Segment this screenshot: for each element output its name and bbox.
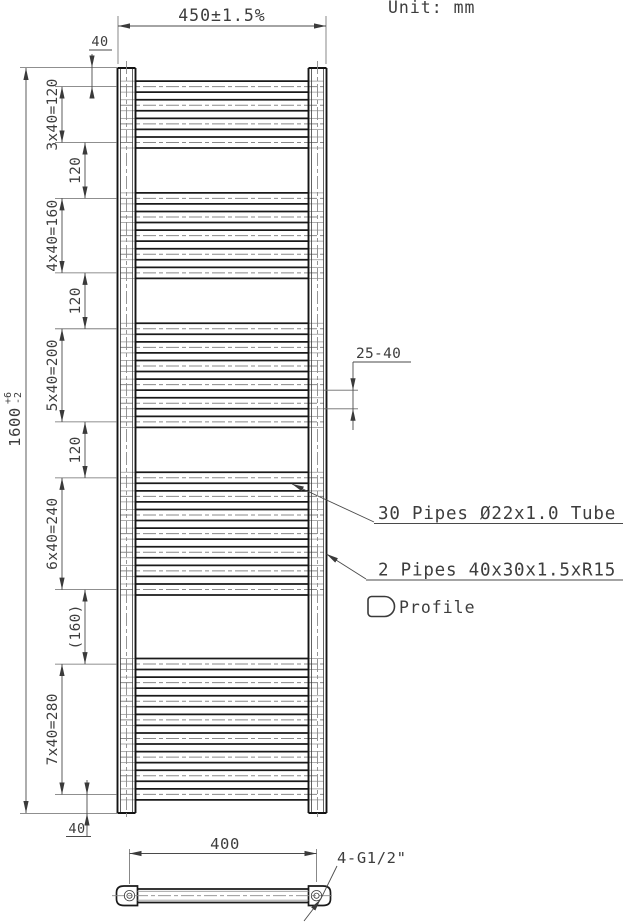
profile-legend: Profile: [368, 597, 476, 618]
dim-top-margin: 40: [89, 34, 112, 98]
chain-dimensions: 3x40=120 4x40=160 5x40=200 6x40=240 7x40…: [45, 34, 117, 837]
dim-height-tol-minus: -2: [13, 392, 24, 404]
dim-top-margin-label: 40: [91, 34, 108, 50]
note-connections-label: 4-G1/2": [337, 849, 407, 867]
dim-chain-label: 3x40=120: [45, 78, 61, 150]
dim-pipe-pitch: 25-40: [324, 346, 412, 430]
dim-width-label: 450±1.5%: [178, 6, 265, 25]
dim-bottom-margin: 40: [66, 780, 91, 837]
dim-height-label: 1600: [6, 407, 24, 447]
note-connections: 4-G1/2": [304, 849, 407, 921]
bottom-view: 400 4-G1/2": [112, 835, 407, 921]
front-view: [118, 61, 327, 820]
left-side-tube: [118, 61, 136, 820]
dim-gap-label: (160): [68, 604, 84, 649]
dim-bottom-margin-label: 40: [68, 821, 85, 837]
pipes-layer: [120, 81, 325, 800]
dim-overall-width: 450±1.5%: [118, 6, 326, 64]
dim-connection-spacing: 400: [130, 835, 317, 884]
note-2-pipes-label: 2 Pipes 40x30x1.5xR15 T: [378, 561, 623, 581]
dim-gap-label: 120: [68, 157, 84, 184]
unit-note: Unit: mm: [388, 0, 475, 17]
dim-chain-label: 4x40=160: [45, 199, 61, 271]
dim-gap-label: 120: [68, 436, 84, 463]
note-30-pipes-label: 30 Pipes Ø22x1.0 Tube: [378, 504, 616, 524]
drawing-canvas: 450±1.5% Unit: mm 1600 +6 -2 3x40=120: [0, 0, 623, 923]
note-30-pipes: 30 Pipes Ø22x1.0 Tube: [292, 484, 623, 524]
right-side-tube: [309, 61, 327, 820]
dim-chain-label: 6x40=240: [45, 498, 61, 570]
dim-pipe-pitch-label: 25-40: [356, 346, 401, 362]
dim-chain-label: 7x40=280: [45, 693, 61, 765]
dim-connection-spacing-label: 400: [210, 835, 240, 853]
technical-drawing: 450±1.5% Unit: mm 1600 +6 -2 3x40=120: [0, 0, 623, 923]
dim-gap-label: 120: [68, 287, 84, 314]
profile-label: Profile: [399, 598, 476, 617]
note-2-pipes: 2 Pipes 40x30x1.5xR15 T: [327, 554, 623, 581]
profile-shape-icon: [368, 597, 395, 617]
dim-chain-label: 5x40=200: [45, 339, 61, 411]
